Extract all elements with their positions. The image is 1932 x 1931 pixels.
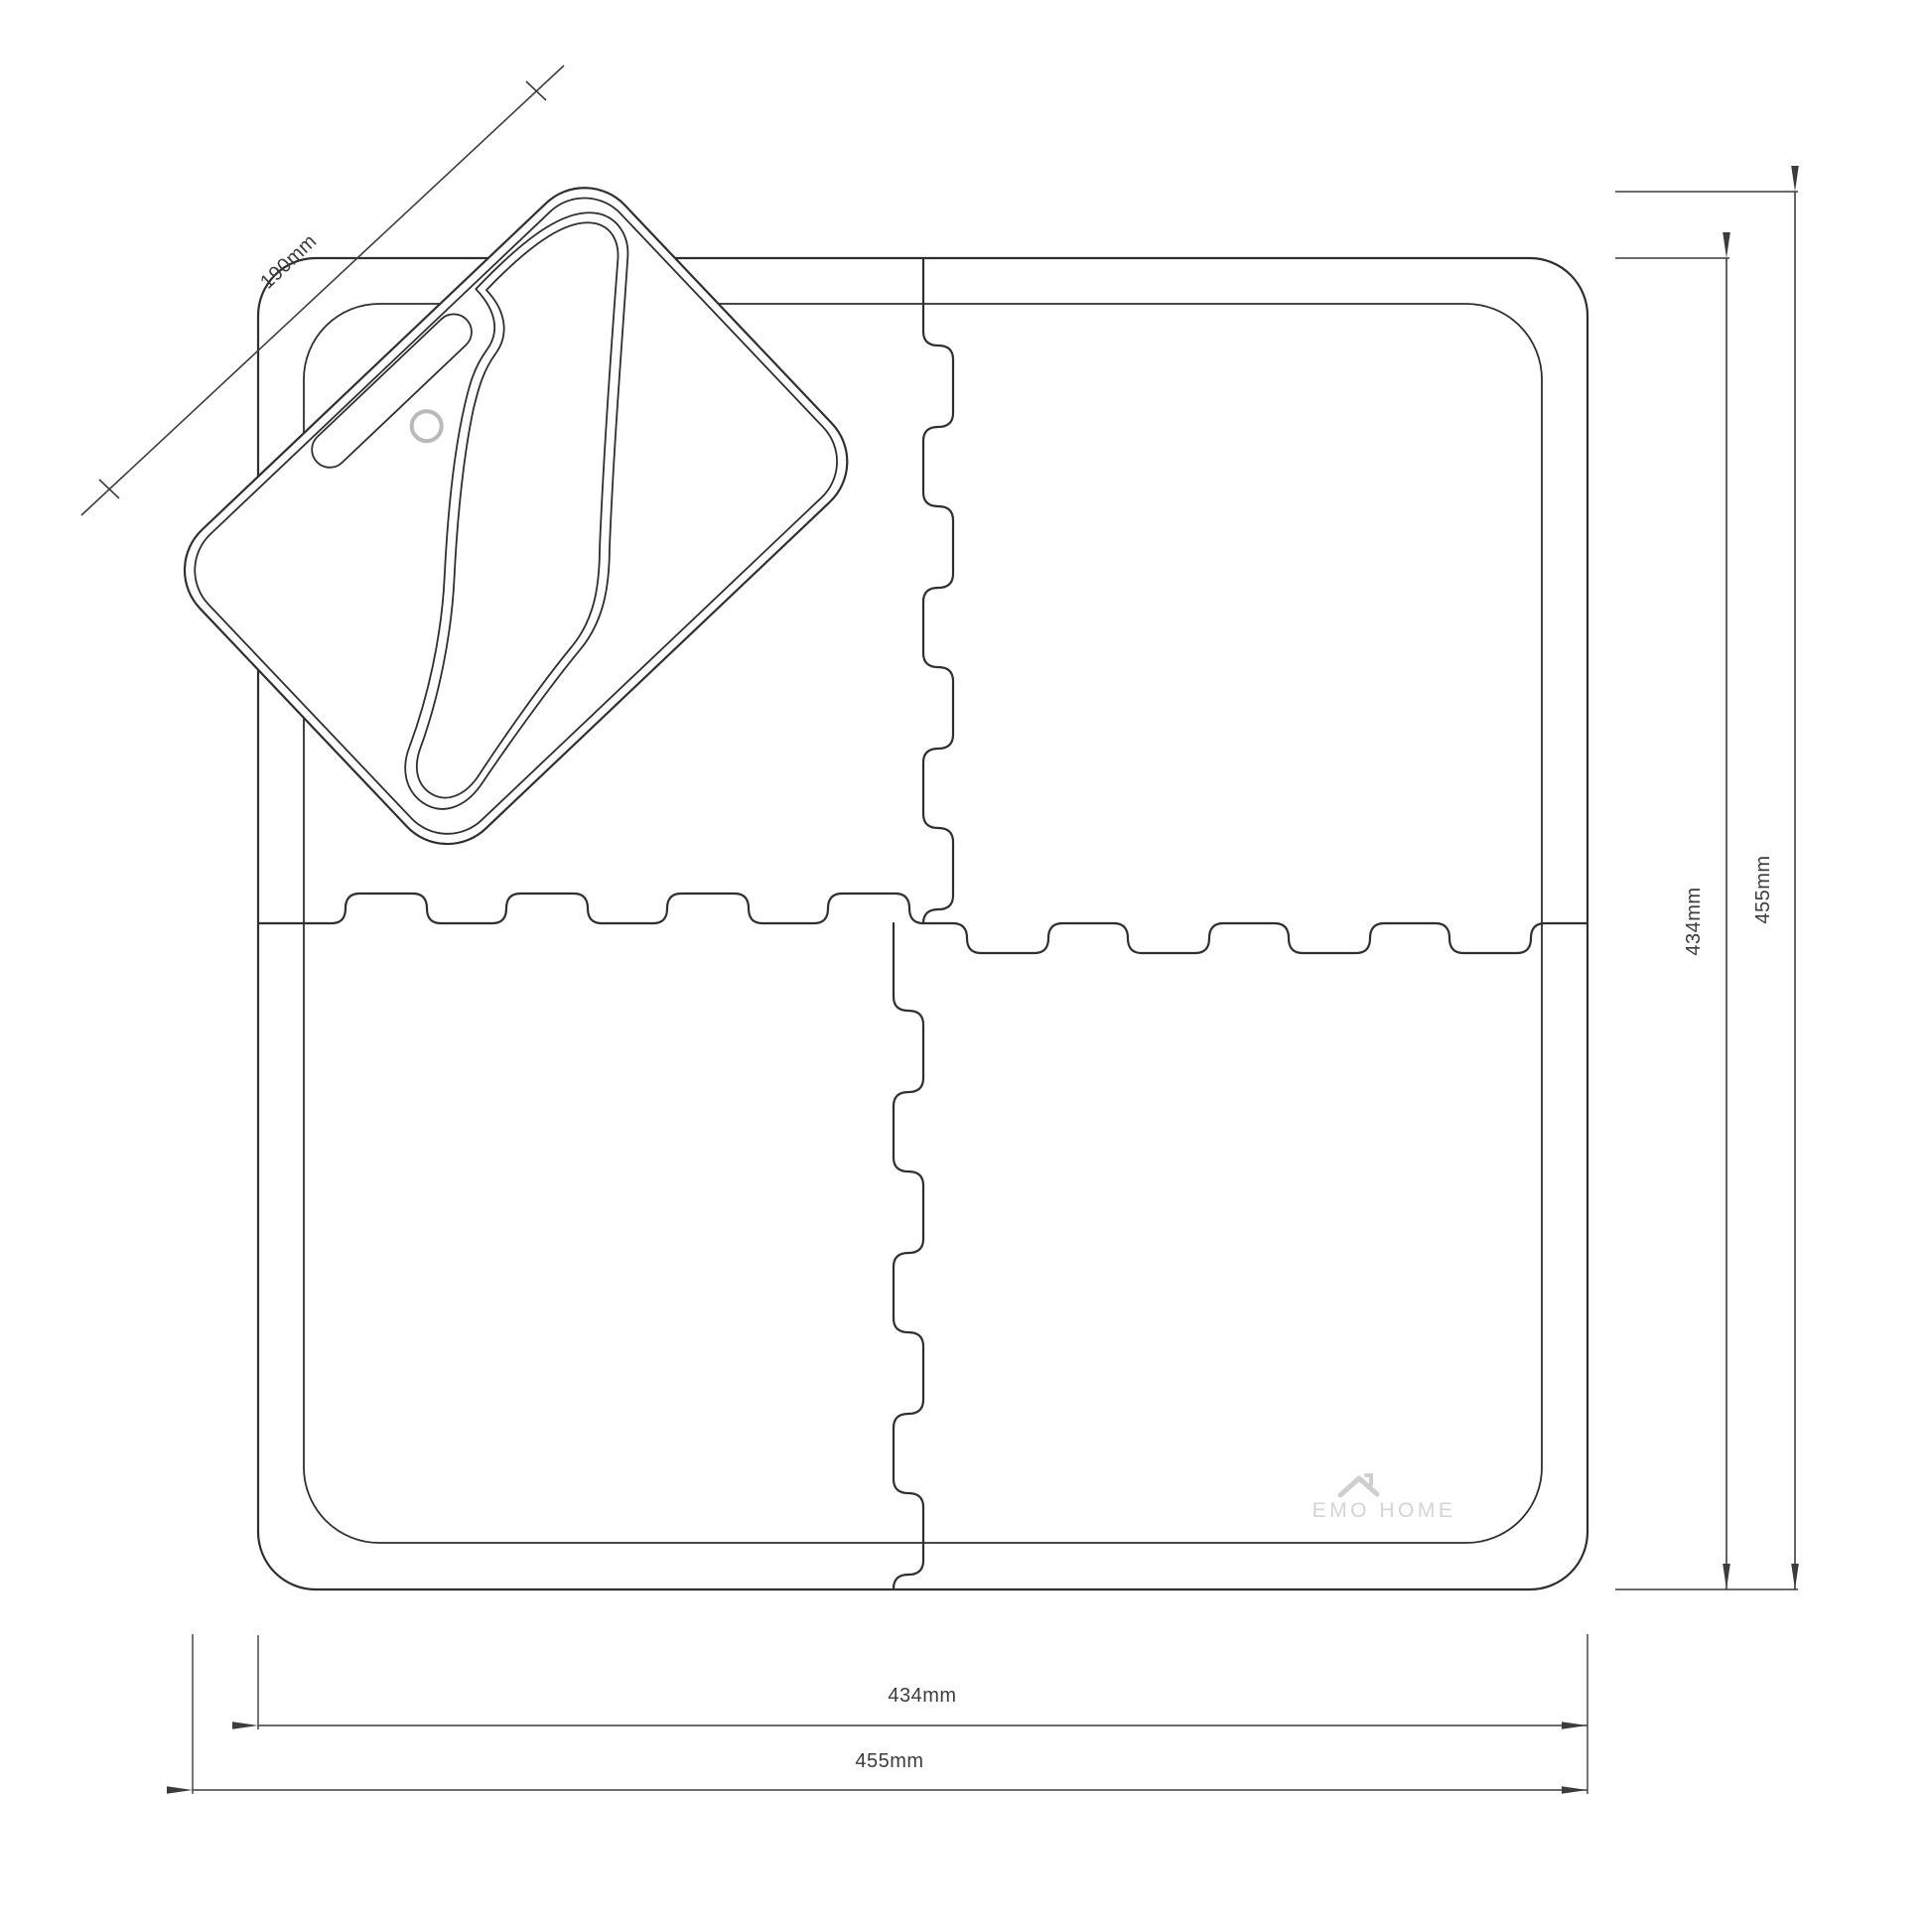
label-width-inner: 434mm (888, 1685, 956, 1707)
drawing-canvas: EMO HOME (0, 0, 1932, 1931)
label-height-inner: 434mm (1683, 887, 1705, 955)
logo-text: EMO HOME (1312, 1499, 1456, 1522)
technical-drawing-svg: EMO HOME (0, 0, 1932, 1931)
label-width-overall: 455mm (855, 1750, 923, 1772)
label-height-overall: 455mm (1752, 855, 1774, 923)
